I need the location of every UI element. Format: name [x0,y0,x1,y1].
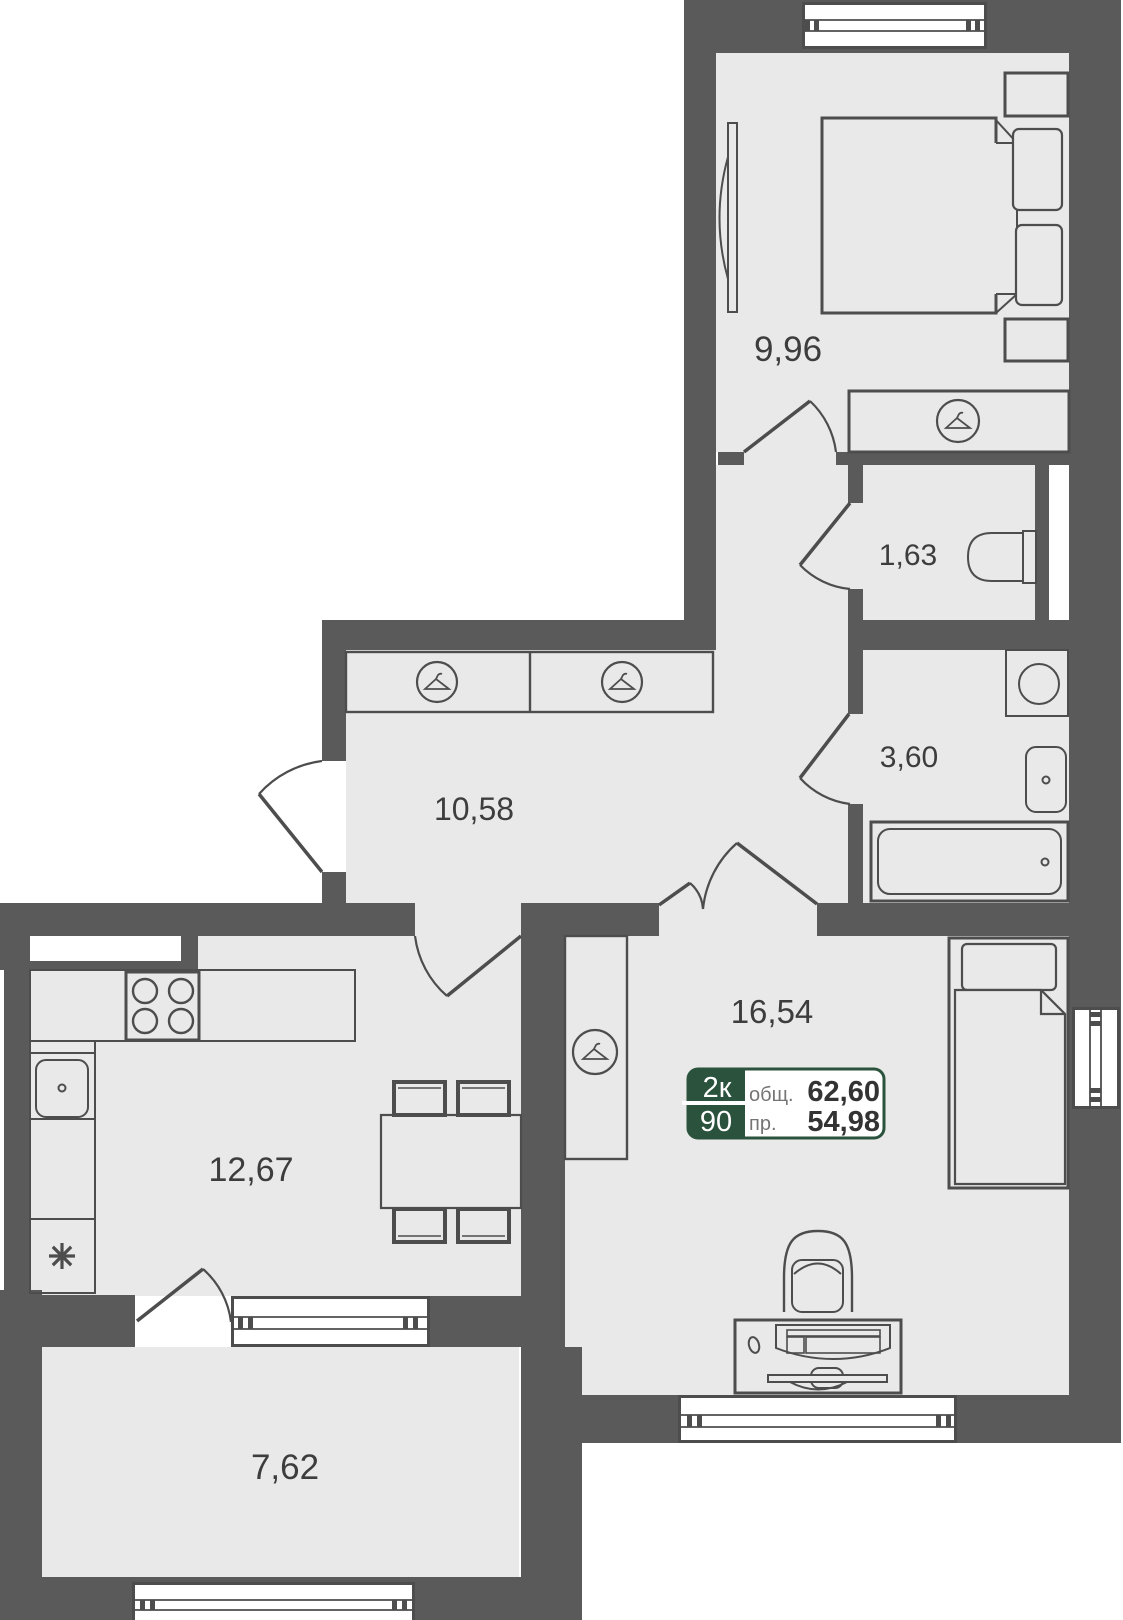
svg-text:общ.: общ. [749,1084,794,1106]
svg-text:12,67: 12,67 [208,1151,293,1189]
svg-text:10,58: 10,58 [434,791,514,827]
svg-text:7,62: 7,62 [251,1448,319,1487]
svg-text:62,60: 62,60 [807,1076,880,1108]
svg-text:2к: 2к [703,1072,732,1104]
svg-text:16,54: 16,54 [731,993,814,1030]
svg-text:1,63: 1,63 [879,539,937,572]
svg-text:90: 90 [700,1106,732,1138]
svg-text:пр.: пр. [749,1113,777,1135]
svg-text:9,96: 9,96 [754,330,822,369]
svg-text:3,60: 3,60 [880,741,938,774]
svg-text:54,98: 54,98 [807,1106,880,1138]
